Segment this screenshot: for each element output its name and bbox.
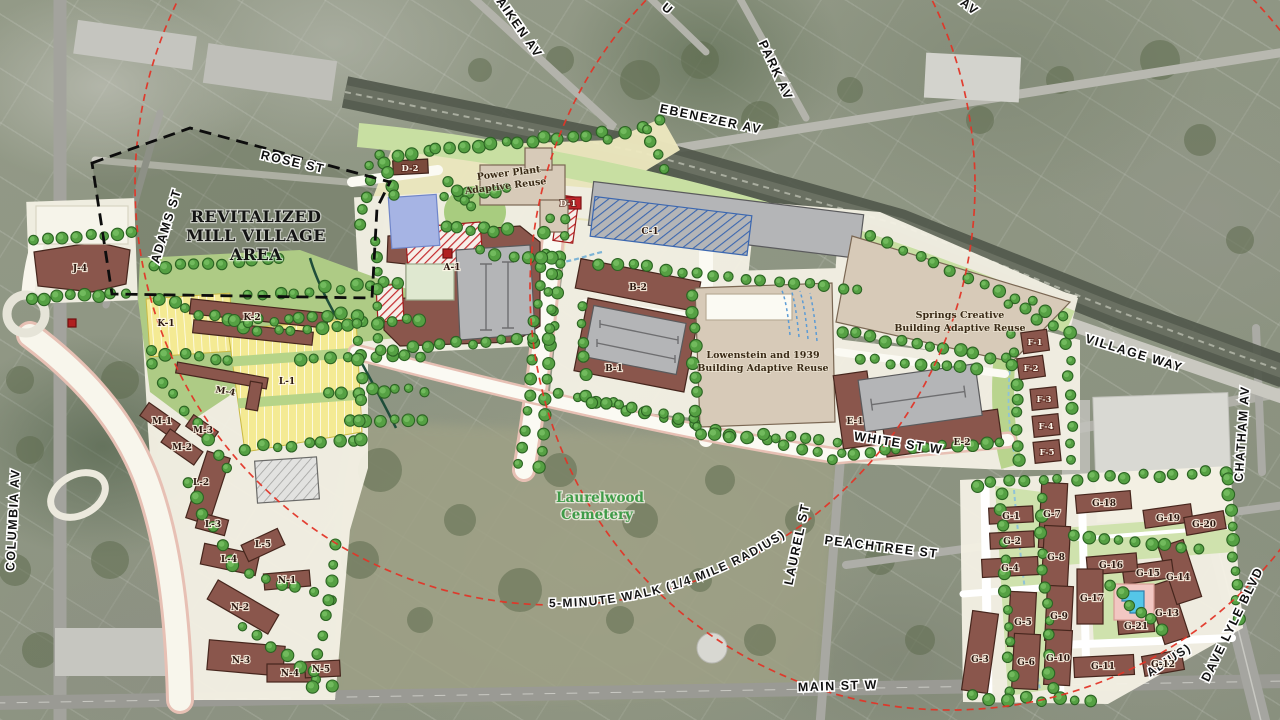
parcel-f2: F-2 — [1023, 364, 1038, 374]
industrial-building — [55, 628, 170, 676]
parcel-n5: N-5 — [312, 665, 330, 675]
pond — [388, 194, 439, 248]
cemetery-line2: Cemetery — [561, 507, 634, 523]
parcel-k2: K-2 — [243, 313, 260, 323]
parcel-n4: N-4 — [281, 669, 299, 679]
parcel-g15: G-15 — [1136, 569, 1160, 579]
parcel-d2: D-2 — [402, 164, 419, 174]
note-lowenstein-1: Lowenstein and 1939 — [706, 350, 820, 361]
parcel-l3: L-3 — [205, 520, 221, 530]
map-canvas: ROSE STADAMS STEBENEZER AVAIKEN AVUAVPAR… — [0, 0, 1280, 720]
parcel-n1: N-1 — [278, 576, 296, 586]
parcel-g5: G-5 — [1014, 618, 1032, 628]
parcel-g16: G-16 — [1099, 561, 1123, 571]
small-red-structure — [443, 249, 452, 258]
parcel-g11: G-11 — [1091, 662, 1115, 672]
mill-village-line3: AREA — [229, 245, 282, 264]
parcel-g17: G-17 — [1080, 594, 1104, 604]
parcel-g8: G-8 — [1047, 553, 1065, 563]
street-main: MAIN ST W — [798, 678, 879, 695]
parcel-m3: M-3 — [193, 426, 213, 436]
parcel-f1: F-1 — [1027, 338, 1042, 348]
mill-village-line1: REVITALIZED — [191, 207, 322, 226]
parcel-g4: G-4 — [1001, 564, 1019, 574]
note-springs-2: Building Adaptive Reuse — [894, 323, 1025, 334]
parcel-n2: N-2 — [231, 603, 249, 613]
parcel-g21: G-21 — [1124, 622, 1148, 632]
parcel-f4: F-4 — [1038, 422, 1053, 432]
street-u-partial: U — [659, 0, 676, 17]
note-lowenstein-2: Building Adaptive Reuse — [697, 363, 828, 374]
parcel-e1: E-1 — [846, 417, 863, 427]
parcel-g19: G-19 — [1156, 514, 1180, 524]
site-plan-map: ROSE STADAMS STEBENEZER AVAIKEN AVUAVPAR… — [0, 0, 1280, 720]
note-springs-1: Springs Creative — [916, 310, 1005, 321]
parcel-e2: E-2 — [953, 438, 970, 448]
mill-village-line2: MILL VILLAGE — [186, 226, 326, 245]
park-red-structure — [68, 319, 76, 327]
parcel-g1: G-1 — [1002, 512, 1020, 522]
parcel-g3: G-3 — [971, 655, 989, 665]
parcel-b2: B-2 — [629, 283, 647, 293]
parcel-g9: G-9 — [1050, 612, 1068, 622]
parcel-f5: F-5 — [1039, 448, 1054, 458]
street-aiken: AIKEN AV — [493, 0, 545, 61]
parcel-g14: G-14 — [1166, 573, 1190, 583]
parcel-g18: G-18 — [1092, 499, 1116, 509]
parcel-k1: K-1 — [157, 319, 174, 329]
parcel-f3: F-3 — [1036, 395, 1051, 405]
parcel-g12: G-12 — [1151, 660, 1175, 670]
parcel-j4: J-4 — [72, 264, 87, 274]
parcel-l1: L-1 — [279, 377, 295, 387]
parcel-c1: C-1 — [641, 227, 658, 237]
parcel-d1: D-1 — [560, 199, 577, 209]
parcel-n3: N-3 — [232, 656, 250, 666]
water-tower — [697, 633, 727, 663]
parcel-l5: L-5 — [255, 540, 271, 550]
street-park: PARK AV — [756, 38, 796, 102]
parcel-g7: G-7 — [1043, 510, 1061, 520]
parcel-l4: L-4 — [221, 555, 237, 565]
parcel-g20: G-20 — [1192, 520, 1216, 530]
parcel-g10: G-10 — [1046, 654, 1070, 664]
parcel-a1: A-1 — [443, 263, 461, 273]
parcel-g6: G-6 — [1017, 658, 1035, 668]
parcel-l2: L-2 — [193, 478, 209, 488]
parking-deck-l — [255, 457, 320, 503]
parcel-g2: G-2 — [1003, 537, 1021, 547]
parcel-m1: M-1 — [152, 417, 172, 427]
lowenstein-courtyard — [706, 294, 792, 320]
parcel-b1: B-1 — [605, 364, 623, 374]
street-av-partial: AV — [957, 0, 981, 18]
cemetery-line1: Laurelwood — [556, 490, 645, 506]
cemetery-grounds — [330, 420, 840, 702]
parcel-m2: M-2 — [172, 443, 192, 453]
u-street-road — [648, 0, 706, 52]
parcel-g13: G-13 — [1155, 609, 1179, 619]
